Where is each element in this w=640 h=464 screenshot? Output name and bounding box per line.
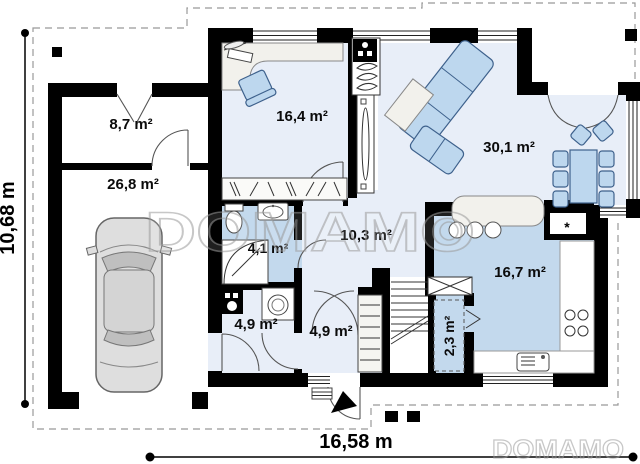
label-living: 30,1 m² [483,139,535,156]
label-storage: 8,7 m² [109,116,152,133]
garage-door-opening [79,392,192,409]
entry-closet [358,295,382,372]
porch-post [407,411,420,422]
label-fridge-star: * [564,219,570,235]
fence-post [52,47,62,57]
window [478,28,517,43]
entrance-arrow-icon [331,391,357,413]
boiler-icon [353,39,377,62]
dimension-width: 16,58 m [319,431,392,453]
under-stair-closet [428,277,472,295]
label-pantry: 2,3 m² [441,315,457,356]
sliding-door [357,95,374,193]
floor-plan-canvas: 8,7 m² 26,8 m² 16,4 m² 30,1 m² 4,1 m² 10… [0,0,640,464]
porch-post [385,411,398,422]
kitchen-sink-icon [517,353,549,371]
label-study: 16,4 m² [276,108,328,125]
dimension-height: 10,68 m [0,181,19,254]
dining-table [570,150,597,203]
entrance-step [312,388,332,399]
terrace-door-opening [548,82,618,95]
entrance-opening [330,373,360,387]
boiler-stove-icon [222,290,243,314]
window [253,28,317,43]
label-garage: 26,8 m² [107,176,159,193]
window [483,373,553,387]
label-kitchen: 16,7 m² [494,264,546,281]
wardrobe [222,178,347,200]
window [308,373,330,387]
label-utility: 4,9 m² [234,316,277,333]
label-entry: 4,9 m² [309,323,352,340]
terrace-post [625,29,637,41]
bar-stool [485,222,501,238]
garage-storage-door [152,130,188,166]
window [626,101,640,199]
watermark-center: DOMAMO [145,200,475,263]
floor-plan-page: 8,7 m² 26,8 m² 16,4 m² 30,1 m² 4,1 m² 10… [0,0,640,464]
watermark-corner: DOMAMO [492,434,624,464]
